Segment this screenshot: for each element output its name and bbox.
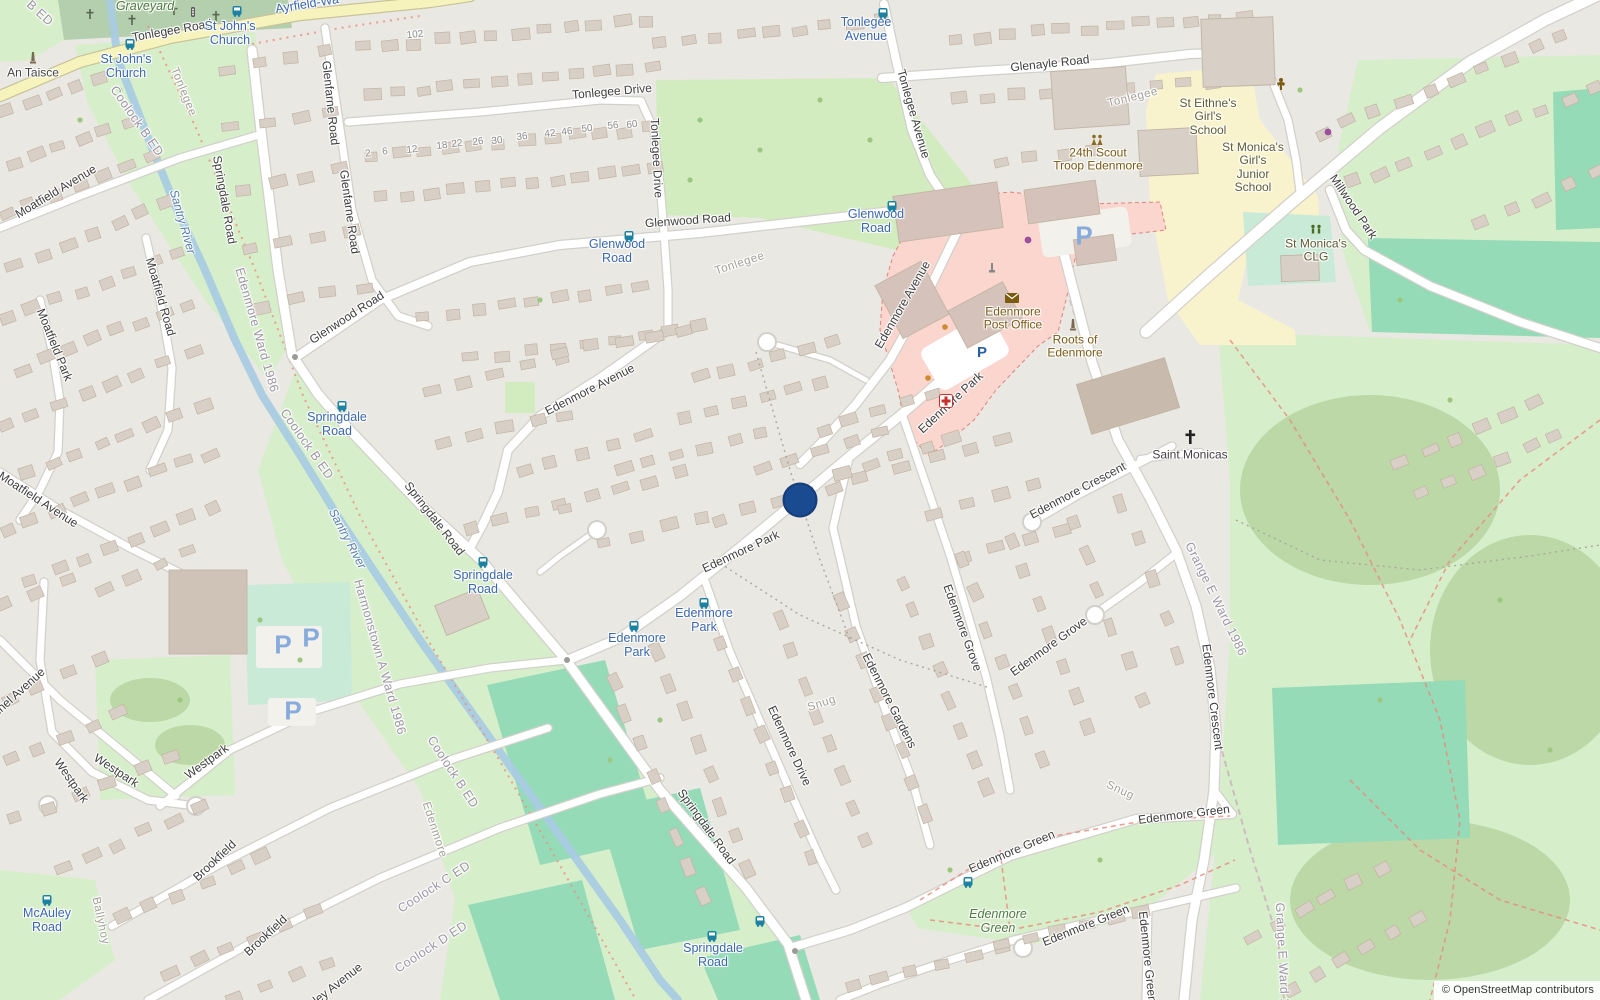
map-canvas[interactable]: Tonlegee RoadTonlegee DriveTonlegee Driv… (0, 0, 1600, 1000)
map-attribution: © OpenStreetMap contributors (1434, 981, 1600, 1000)
attribution-text[interactable]: © OpenStreetMap contributors (1442, 984, 1594, 996)
location-marker[interactable] (783, 483, 818, 518)
